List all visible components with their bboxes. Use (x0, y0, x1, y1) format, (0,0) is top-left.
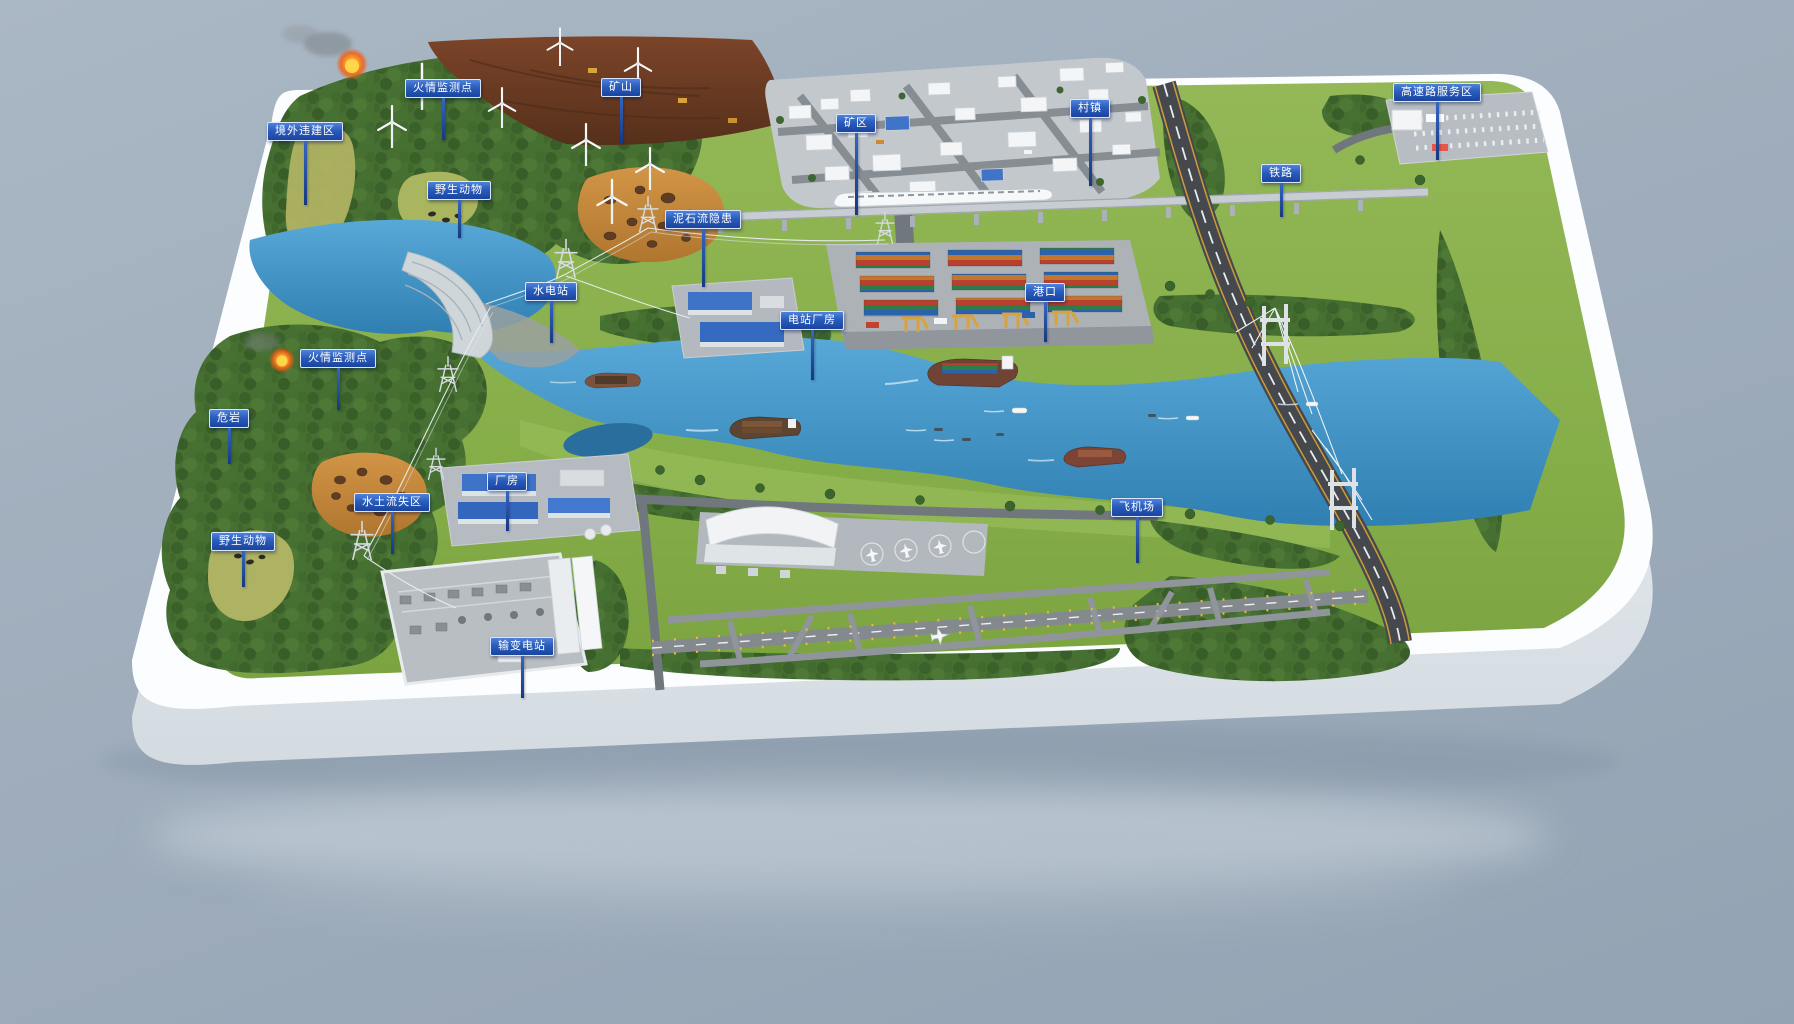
marker-hydropower-station[interactable]: 水电站 (525, 282, 577, 343)
truck (934, 318, 947, 324)
marker-dangerous-rock[interactable]: 危岩 (209, 409, 249, 464)
marker-pole (1436, 102, 1439, 160)
marker-pole (550, 301, 553, 343)
marker-sign[interactable]: 水电站 (525, 282, 577, 301)
marker-wildlife-1[interactable]: 野生动物 (427, 181, 491, 238)
marker-port[interactable]: 港口 (1025, 283, 1065, 342)
marker-sign[interactable]: 电站厂房 (780, 311, 844, 330)
factory (440, 454, 640, 546)
marker-town[interactable]: 村镇 (1070, 99, 1110, 186)
marker-pole (337, 368, 340, 410)
marker-pole (391, 512, 394, 554)
marker-sign[interactable]: 厂房 (487, 472, 527, 491)
marker-pole (620, 97, 623, 143)
marker-power-plant-building[interactable]: 电站厂房 (780, 311, 844, 380)
container-stacks (856, 248, 1122, 316)
marker-sign[interactable]: 矿山 (601, 78, 641, 97)
marker-debris-flow[interactable]: 泥石流隐患 (665, 210, 741, 287)
marker-pole (1136, 517, 1139, 563)
marker-sign[interactable]: 水土流失区 (354, 493, 430, 512)
marker-sign[interactable]: 高速路服务区 (1393, 83, 1481, 102)
marker-outside-violation-area[interactable]: 境外违建区 (267, 122, 343, 205)
marker-sign[interactable]: 铁路 (1261, 164, 1301, 183)
marker-sign[interactable]: 境外违建区 (267, 122, 343, 141)
marker-pole (304, 141, 307, 205)
marker-pole (506, 491, 509, 531)
marker-pole (1280, 183, 1283, 217)
marker-substation[interactable]: 输变电站 (490, 637, 554, 698)
marker-sign[interactable]: 矿区 (836, 114, 876, 133)
marker-pole (1044, 302, 1047, 342)
marker-fire-monitor-2[interactable]: 火情监测点 (300, 349, 376, 410)
marker-factory[interactable]: 厂房 (487, 472, 527, 531)
marker-pole (458, 200, 461, 238)
marker-pole (242, 551, 245, 587)
marker-soil-erosion[interactable]: 水土流失区 (354, 493, 430, 554)
port (826, 240, 1154, 350)
marker-sign[interactable]: 输变电站 (490, 637, 554, 656)
marker-sign[interactable]: 港口 (1025, 283, 1065, 302)
marker-sign[interactable]: 泥石流隐患 (665, 210, 741, 229)
marker-expressway-service-area[interactable]: 高速路服务区 (1393, 83, 1481, 160)
marker-sign[interactable]: 飞机场 (1111, 498, 1163, 517)
sandbox-scene: 境外违建区 火情监测点 矿山 野生动物 泥石流隐患 水电站 矿区 村镇 铁路 高… (0, 0, 1794, 1024)
marker-sign[interactable]: 火情监测点 (405, 79, 481, 98)
marker-airport[interactable]: 飞机场 (1111, 498, 1163, 563)
marker-sign[interactable]: 火情监测点 (300, 349, 376, 368)
marker-pole (811, 330, 814, 380)
fire-icon (282, 25, 368, 80)
marker-wildlife-2[interactable]: 野生动物 (211, 532, 275, 587)
marker-sign[interactable]: 村镇 (1070, 99, 1110, 118)
marker-sign[interactable]: 危岩 (209, 409, 249, 428)
marker-mine[interactable]: 矿山 (601, 78, 641, 143)
marker-sign[interactable]: 野生动物 (427, 181, 491, 200)
marker-pole (702, 229, 705, 287)
marker-pole (442, 98, 445, 140)
marker-mining-area[interactable]: 矿区 (836, 114, 876, 215)
car (1024, 150, 1032, 154)
marker-pole (228, 428, 231, 464)
truck (866, 322, 879, 328)
marker-pole (855, 133, 858, 215)
marker-fire-monitor-1[interactable]: 火情监测点 (405, 79, 481, 140)
marker-pole (521, 656, 524, 698)
car (876, 140, 884, 144)
marker-railway[interactable]: 铁路 (1261, 164, 1301, 217)
marker-pole (1089, 118, 1092, 186)
marker-sign[interactable]: 野生动物 (211, 532, 275, 551)
